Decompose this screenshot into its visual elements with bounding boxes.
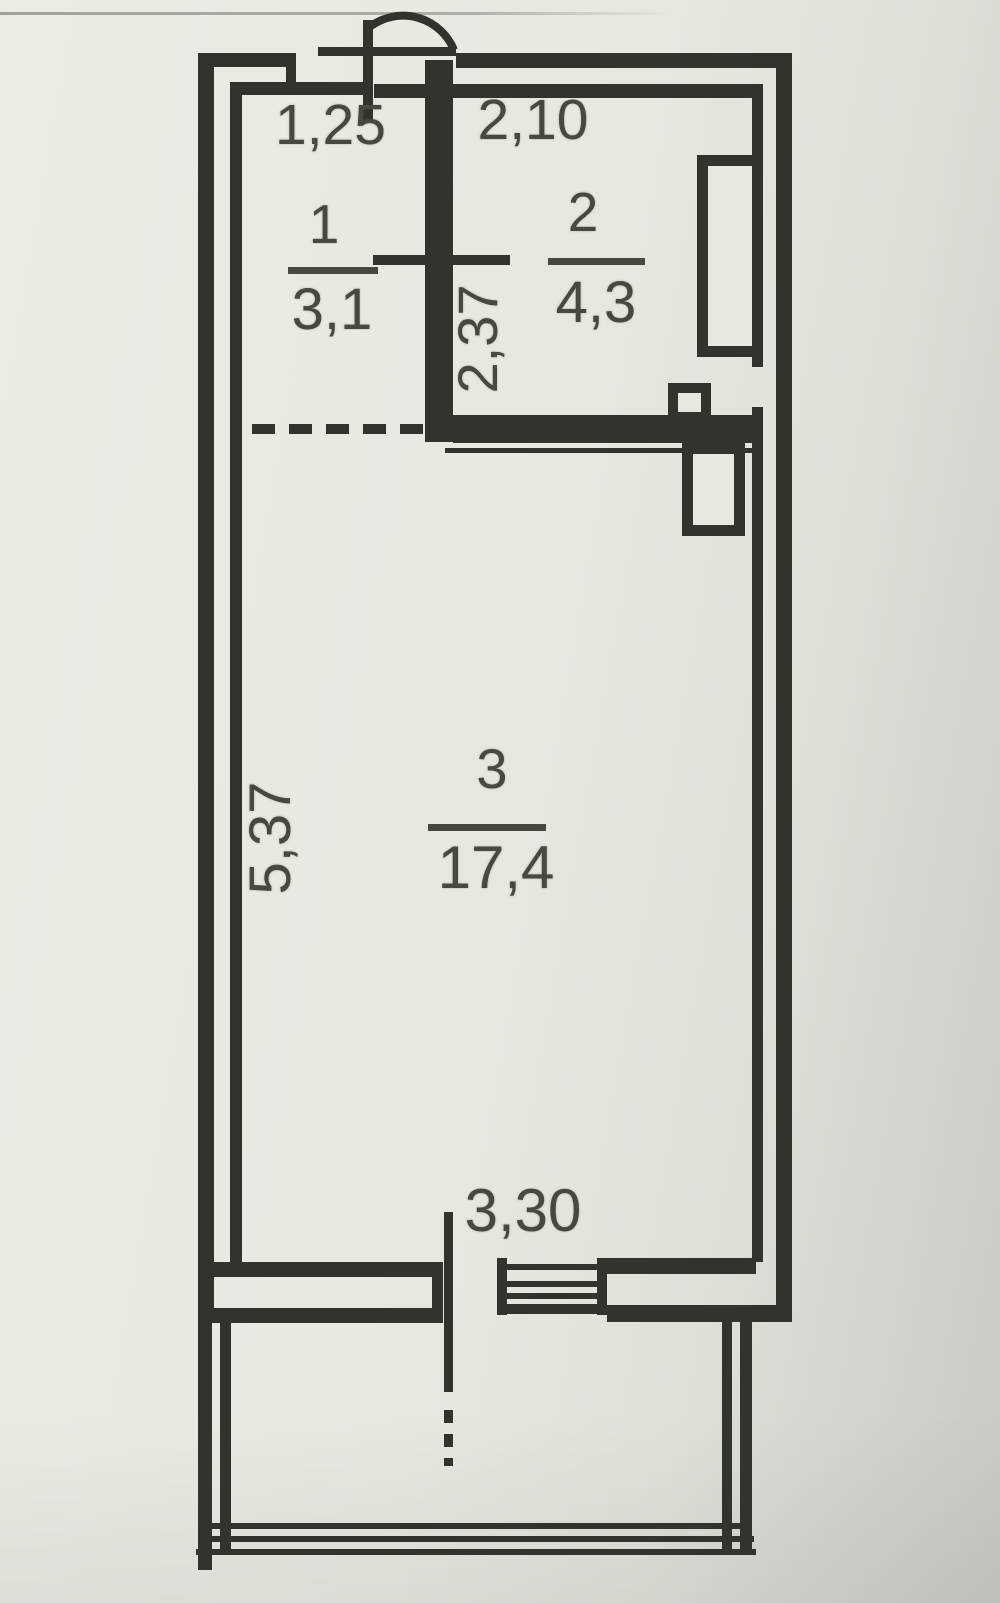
room1-room3-dashed-boundary	[252, 424, 425, 434]
dim-room2-depth: 2,37	[450, 264, 506, 414]
room1-number: 1	[294, 197, 354, 252]
dim-entry-width: 1,25	[258, 97, 403, 154]
window-line-3	[507, 1293, 597, 1299]
balcony-rail-line-2	[198, 1536, 754, 1542]
dim-room3-depth: 5,37	[242, 758, 300, 918]
room2-fraction-line	[548, 258, 645, 265]
balcony-rail-line-1	[200, 1523, 752, 1529]
wall-bottom-left-jamb	[432, 1262, 443, 1323]
wall-bottom-inner-left	[214, 1262, 443, 1277]
window-line-2	[507, 1281, 597, 1287]
room3-area: 17,4	[426, 838, 566, 898]
balcony-wall-right-outer	[740, 1318, 752, 1555]
room2-number: 2	[553, 185, 613, 240]
window-line-1	[507, 1264, 597, 1270]
wall-bottom-inner-right	[607, 1258, 756, 1274]
balcony-door-line-dashed	[444, 1410, 453, 1466]
wall-left-outer	[198, 53, 214, 1323]
balcony-wall-left-inner	[220, 1323, 231, 1555]
balcony-rail-line-3	[196, 1549, 756, 1555]
vent-shaft-small	[668, 383, 711, 422]
balcony-wall-right-inner	[722, 1318, 732, 1555]
wall-right-outer	[776, 53, 792, 1322]
wall-bottom-outer-left	[198, 1308, 443, 1323]
window-sill-line	[497, 1304, 607, 1314]
room3-fraction-line	[428, 824, 546, 831]
room1-area: 3,1	[282, 281, 382, 339]
wall-right-inner-lower	[752, 407, 763, 1262]
room2-wall-niche	[697, 155, 763, 357]
room2-area: 4,3	[546, 274, 646, 332]
wall-left-inner	[230, 82, 242, 1263]
vent-shaft-large	[682, 443, 745, 536]
window-right-cap	[597, 1258, 607, 1315]
balcony-wall-left-outer	[198, 1323, 212, 1570]
room1-fraction-line	[288, 267, 378, 274]
dim-room2-width: 2,10	[453, 92, 613, 149]
floor-plan: 1,25 2,10 2,37 5,37 3,30 1 3,1 2 4,3 3 1…	[0, 0, 1000, 1603]
dim-room3-width: 3,30	[440, 1181, 606, 1241]
room3-number: 3	[462, 741, 522, 797]
wall-bottom-outer-right	[607, 1305, 792, 1322]
